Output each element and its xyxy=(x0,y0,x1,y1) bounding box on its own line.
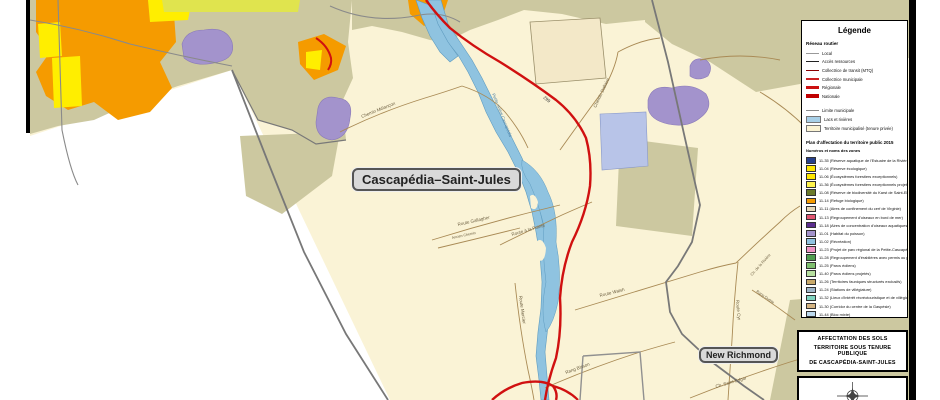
legend-zone-item: 11-14 (Refuge biologique) xyxy=(806,197,903,205)
zone-label: 11-18 (Aires de concentration d'oiseaux … xyxy=(819,223,908,228)
legend-zone-item: 11-23 (Projet de parc régional de la Pet… xyxy=(806,245,903,253)
map-frame-right xyxy=(909,0,916,400)
legend-item-lacs-rivieres: Lacs et rivières xyxy=(806,115,903,124)
zone-color-swatch-icon xyxy=(806,165,816,172)
legend-item-nationale: Nationale xyxy=(806,92,903,101)
zone-label: 11-40 (Parcs éoliens projetés) xyxy=(819,271,871,276)
road-local-line-icon xyxy=(806,53,819,54)
legend-zone-item: 11-25 (Parcs éoliens) xyxy=(806,262,903,270)
zone-label: 11-36 (Écosystèmes forestiers exceptionn… xyxy=(819,182,908,187)
yellowgreen-zone xyxy=(162,0,300,12)
zone-color-swatch-icon xyxy=(806,270,816,277)
compass-block xyxy=(797,376,908,400)
zone-label: 11-44 (Bloc mixte) xyxy=(819,312,850,317)
zone-label: 11-23 (Projet de parc régional de la Pet… xyxy=(819,247,908,252)
zone-color-swatch-icon xyxy=(806,181,816,188)
legend-plan-subtitle: Numéros et noms des zones xyxy=(806,148,903,153)
lavender-zone xyxy=(600,112,648,170)
legend-zone-item: 11-11 (Aires de confinement du cerf de V… xyxy=(806,205,903,213)
zone-label: 11-30 (Corridor du centre de la Gaspésie… xyxy=(819,304,891,309)
zone-label: 11-04 (Réserve écologique) xyxy=(819,166,867,171)
legend-item-limite-municipale: Limite municipale xyxy=(806,107,903,116)
map-title-line3: DE CASCAPÉDIA-SAINT-JULES xyxy=(799,360,906,366)
map-title-block: AFFECTATION DES SOLS TERRITOIRE SOUS TEN… xyxy=(797,330,908,372)
legend-zone-item: 11-02 (Récréation) xyxy=(806,237,903,245)
legend-zone-item: 11-04 (Réserve écologique) xyxy=(806,164,903,172)
legend-item-acces: Accès ressources xyxy=(806,58,903,67)
map-frame-left xyxy=(26,0,30,133)
zone-label: 11-14 (Refuge biologique) xyxy=(819,198,864,203)
zone-label: 11-24 (Stations de villégiature) xyxy=(819,287,871,292)
zone-label: 11-28 (Regroupement d'érablières avec pe… xyxy=(819,255,908,260)
legend-item-collectrice-municipale: Collectrice municipale xyxy=(806,75,903,84)
legend-zone-item: 11-44 (Bloc mixte) xyxy=(806,310,903,318)
deer-confinement-zone xyxy=(530,18,606,84)
zone-color-swatch-icon xyxy=(806,262,816,269)
legend-item-local: Local xyxy=(806,49,903,58)
legend-item-regionale: Régionale xyxy=(806,83,903,92)
zone-color-swatch-icon xyxy=(806,230,816,237)
legend-road-section-title: Réseau routier xyxy=(806,41,903,46)
road-national-line-icon xyxy=(806,94,819,98)
zone-color-swatch-icon xyxy=(806,189,816,196)
legend-zone-item: 11-40 (Parcs éoliens projetés) xyxy=(806,270,903,278)
zone-label: 11-26 (Territoires fauniques structurés … xyxy=(819,279,902,284)
zone-color-swatch-icon xyxy=(806,173,816,180)
legend-zone-item: 11-13 (Regroupement d'oiseaux en bord de… xyxy=(806,213,903,221)
zone-color-swatch-icon xyxy=(806,303,816,310)
map-title-line1: AFFECTATION DES SOLS xyxy=(799,336,906,342)
legend-zone-item: 11-08 (Réserve de biodiversité du Karst … xyxy=(806,189,903,197)
road-transit-collector-line-icon xyxy=(806,70,819,71)
legend-item-territoire-municipalise: Territoire municipalisé (tenure privée) xyxy=(806,124,903,133)
zone-color-swatch-icon xyxy=(806,287,816,294)
map-sheet: { "map": { "region_labels": { "municipal… xyxy=(0,0,940,400)
zone-label: 11-11 (Aires de confinement du cerf de V… xyxy=(819,206,901,211)
zone-label: 11-25 (Parcs éoliens) xyxy=(819,263,856,268)
zone-color-swatch-icon xyxy=(806,206,816,213)
zone-label: 11-35 (Réserve aquatique de l'Estuaire d… xyxy=(819,158,908,163)
water-swatch-icon xyxy=(806,116,821,123)
zone-color-swatch-icon xyxy=(806,214,816,221)
legend-plan-title: Plan d'affectation du territoire public … xyxy=(806,140,903,145)
municipalized-swatch-icon xyxy=(806,125,821,132)
legend-zone-item: 11-32 (Lieux d'intérêt récréotouristique… xyxy=(806,294,903,302)
legend-zone-item: 11-30 (Corridor du centre de la Gaspésie… xyxy=(806,302,903,310)
zone-label: 11-08 (Réserve de biodiversité du Karst … xyxy=(819,190,908,195)
legend-zone-item: 11-18 (Aires de concentration d'oiseaux … xyxy=(806,221,903,229)
road-municipal-collector-line-icon xyxy=(806,78,819,80)
legend-zone-item: 11-35 (Réserve aquatique de l'Estuaire d… xyxy=(806,156,903,164)
zone-label: 11-02 (Récréation) xyxy=(819,239,851,244)
legend-zone-list: 11-35 (Réserve aquatique de l'Estuaire d… xyxy=(806,156,903,318)
legend-item-collectrice-transit: Collectrice de transit (MTQ) xyxy=(806,66,903,75)
municipal-limit-line-icon xyxy=(806,110,819,111)
zone-label: 11-01 (Habitat du poisson) xyxy=(819,231,865,236)
zone-color-swatch-icon xyxy=(806,295,816,302)
legend-zone-item: 11-24 (Stations de villégiature) xyxy=(806,286,903,294)
road-resource-line-icon xyxy=(806,61,819,62)
zone-color-swatch-icon xyxy=(806,311,816,318)
zone-color-swatch-icon xyxy=(806,254,816,261)
neighbor-municipality-label: New Richmond xyxy=(699,347,778,363)
road-regional-line-icon xyxy=(806,86,819,89)
legend-zone-item: 11-26 (Territoires fauniques structurés … xyxy=(806,278,903,286)
zone-color-swatch-icon xyxy=(806,157,816,164)
zone-label: 11-13 (Regroupement d'oiseaux en bord de… xyxy=(819,215,903,220)
legend-zone-item: 11-01 (Habitat du poisson) xyxy=(806,229,903,237)
zone-color-swatch-icon xyxy=(806,238,816,245)
zone-color-swatch-icon xyxy=(806,198,816,205)
compass-rose-icon xyxy=(799,378,906,400)
municipality-label: Cascapédia–Saint-Jules xyxy=(352,168,521,191)
legend-panel: Légende Réseau routier Local Accès resso… xyxy=(801,20,908,318)
legend-zone-item: 11-06 (Écosystèmes forestiers exceptionn… xyxy=(806,173,903,181)
zone-label: 11-32 (Lieux d'intérêt récréotouristique… xyxy=(819,295,908,300)
legend-zone-item: 11-28 (Regroupement d'érablières avec pe… xyxy=(806,253,903,261)
zone-color-swatch-icon xyxy=(806,246,816,253)
zone-label: 11-06 (Écosystèmes forestiers exceptionn… xyxy=(819,174,897,179)
zone-color-swatch-icon xyxy=(806,222,816,229)
legend-title: Légende xyxy=(806,26,903,35)
zone-color-swatch-icon xyxy=(806,279,816,286)
map-title-line2: TERRITOIRE SOUS TENURE PUBLIQUE xyxy=(799,345,906,357)
legend-zone-item: 11-36 (Écosystèmes forestiers exceptionn… xyxy=(806,181,903,189)
